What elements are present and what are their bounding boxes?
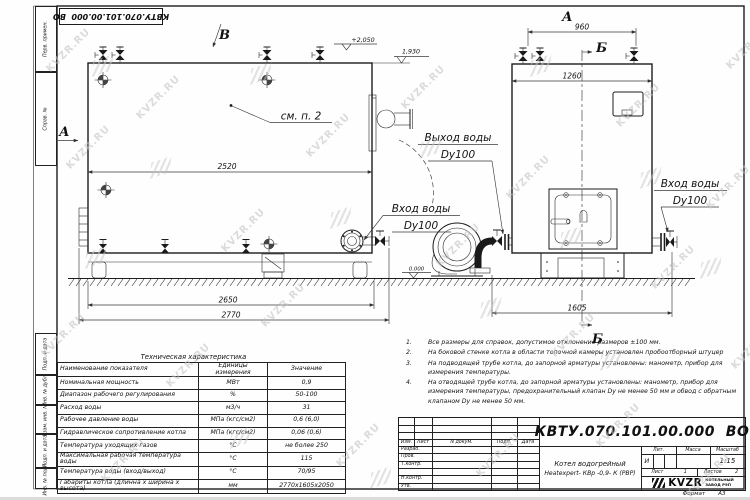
elevation-2050: +2,050 xyxy=(334,37,377,50)
dim-1605: 1605 xyxy=(567,304,586,313)
dim-2770-group: 2770 xyxy=(79,248,389,324)
svg-text:Вход воды: Вход воды xyxy=(661,178,720,190)
tb-sheets-cell: Листов2 xyxy=(697,468,745,476)
drain-valves xyxy=(99,239,250,253)
elevation-1930: 1,930 xyxy=(372,49,429,64)
spec-row: Диапазон рабочего регулирования%50-100 xyxy=(58,389,346,402)
shell-top-valves xyxy=(95,47,325,63)
svg-text:А: А xyxy=(58,125,70,140)
spec-row: Гидравлическое сопротивление котлаМПа (к… xyxy=(58,427,346,440)
spec-row: Температура уходящих газов°Сне более 250 xyxy=(58,440,346,453)
svg-text:+2,050: +2,050 xyxy=(351,37,374,44)
spec-col-value: Значение xyxy=(268,363,346,377)
tb-scale-value: 1:15 xyxy=(710,454,745,468)
furnace-door xyxy=(549,189,617,249)
spec-col-units: Единицы измерения xyxy=(199,363,268,377)
svg-text:Б: Б xyxy=(595,41,607,56)
margin-box-sprav-no: Справ. № xyxy=(35,72,57,166)
tb-scale-label: Масштаб xyxy=(710,446,745,454)
spec-row: Рабочее давление водыМПа (кгс/см2)0,6 (6… xyxy=(58,415,346,428)
dim-2770: 2770 xyxy=(221,311,240,320)
boiler-front-view: 960 1260 xyxy=(492,10,677,347)
tb-col-izm: Изм. xyxy=(399,439,414,446)
spec-table-block: Техническая характеристика Наименование … xyxy=(57,353,330,494)
tb-role-tkontr: Т.контр. xyxy=(401,461,432,468)
tb-role-empty xyxy=(401,468,432,475)
tb-col-ndoc: N докум. xyxy=(432,439,491,446)
inspection-window xyxy=(613,92,643,116)
dim-2650: 2650 xyxy=(218,296,237,305)
tb-sheet-cell: Лист1 xyxy=(641,468,697,476)
see-note-label: см. п. 2 xyxy=(281,111,322,123)
note-3: 3.На подводящей трубе котла, до запорной… xyxy=(404,359,742,378)
spec-row: Номинальная мощностьМВт0,9 xyxy=(58,377,346,390)
top-stamp-code: КВТУ.070.101.00.000 ВО xyxy=(53,12,169,21)
inlet-water-label-front: Вход воды Dy100 xyxy=(654,178,727,232)
svg-text:А: А xyxy=(561,10,573,25)
drawing-sheet: 2520 2650 2770 А В xyxy=(0,0,750,500)
datum-mark xyxy=(95,72,112,88)
margin-box-inv-dubl: Инв. № дубл. xyxy=(35,375,57,405)
flue-assembly xyxy=(369,95,433,206)
spec-row: Расход водым3/ч31 xyxy=(58,402,346,415)
side-ladder xyxy=(79,208,88,246)
pedestal xyxy=(541,253,624,278)
margin-box-podp-data-1: Подп. и дата xyxy=(35,333,57,375)
title-block: Изм. Лист N докум. Подп. Дата Разраб. Пр… xyxy=(398,417,746,491)
tb-col-list: Лист xyxy=(414,439,432,446)
outlet-water-label: Выход воды Dy100 xyxy=(418,132,503,234)
tb-role-nkontr: Н.контр. xyxy=(401,475,432,482)
spec-col-name: Наименование показателя xyxy=(58,363,199,377)
front-inlet-pipe xyxy=(652,231,677,251)
note-4: 4.На отводящей трубе котла, до запорной … xyxy=(404,378,742,406)
view-label-v-top: В xyxy=(213,24,230,47)
svg-text:Dy100: Dy100 xyxy=(404,220,439,232)
dim-2520: 2520 xyxy=(217,162,236,171)
tb-role-prov: Пров. xyxy=(401,453,432,460)
swing-arc xyxy=(399,140,433,206)
svg-text:0.000: 0.000 xyxy=(409,267,425,273)
margin-box-inv-podl: Инв. № подл. xyxy=(35,468,57,489)
svg-text:1,930: 1,930 xyxy=(402,49,420,56)
datum-mark xyxy=(259,72,276,88)
spec-row: Температура воды (вход/выход)°С70/95 xyxy=(58,467,346,480)
margin-box-vzam-inv: Взам. инв. № xyxy=(35,405,57,434)
see-note-callout: см. п. 2 xyxy=(230,104,332,122)
tb-role-utv: Утв. xyxy=(401,483,432,490)
dim-960-group: 960 xyxy=(528,23,636,47)
door-handle xyxy=(580,211,587,222)
kvzr-logo-text: KVZR xyxy=(668,477,702,489)
dim-1260: 1260 xyxy=(562,72,581,81)
outlet-elbow xyxy=(470,230,512,273)
tb-doc-number: КВТУ.070.101.00.000 ВО xyxy=(539,418,745,446)
datum-mark xyxy=(98,182,115,198)
view-label-a-top: А xyxy=(561,10,573,25)
company-logo: KVZR КОТЕЛЬНЫЙ ЗАВОД РЭП xyxy=(641,476,745,490)
svg-text:В: В xyxy=(218,28,230,43)
svg-text:Dy100: Dy100 xyxy=(441,149,476,161)
tb-lit-value: И xyxy=(641,454,653,468)
svg-text:Вход воды: Вход воды xyxy=(392,203,451,215)
note-1: 1.Все размеры для справок, допустимое от… xyxy=(404,338,742,347)
note-2: 2.На боковой стенке котла в области топо… xyxy=(404,348,742,357)
spec-table: Наименование показателя Единицы измерени… xyxy=(57,362,346,494)
tb-lit-label: Лит. xyxy=(641,446,676,454)
tb-product-name: Котел водогрейный Heatexpert- КВр -0,9- … xyxy=(539,446,641,490)
spec-table-title: Техническая характеристика xyxy=(57,353,330,362)
top-stamp: КВТУ.070.101.00.000 ВО xyxy=(59,8,163,25)
view-label-a-left: А xyxy=(58,125,78,141)
company-name: КОТЕЛЬНЫЙ ЗАВОД РЭП xyxy=(705,478,734,488)
dim-960: 960 xyxy=(575,23,590,32)
inlet-water-label-side: Вход воды Dy100 xyxy=(364,203,460,240)
spec-row: Габариты котла (длинна х ширина х высота… xyxy=(58,479,346,493)
kvzr-logo-icon xyxy=(652,478,665,488)
notes-block: 1.Все размеры для справок, допустимое от… xyxy=(404,338,742,407)
ground xyxy=(68,279,695,287)
dim-2650-group: 2650 xyxy=(88,281,374,309)
datum-mark xyxy=(261,236,278,252)
svg-text:Выход воды: Выход воды xyxy=(425,132,492,144)
side-inlet-flange xyxy=(341,230,389,252)
section-label-b-top: Б xyxy=(582,41,607,56)
dim-2520-group: 2520 xyxy=(88,162,372,172)
svg-text:Dy100: Dy100 xyxy=(673,195,708,207)
spec-header-row: Наименование показателя Единицы измерени… xyxy=(58,363,346,377)
spec-row: Максимальная рабочая температура воды°С1… xyxy=(58,452,346,466)
tb-col-data: Дата xyxy=(517,439,539,446)
tb-role-razrab: Разраб. xyxy=(401,446,432,453)
elevation-zero: 0.000 xyxy=(402,267,431,279)
tb-col-podp: Подп. xyxy=(491,439,517,446)
tb-mass-label: Масса xyxy=(676,446,710,454)
